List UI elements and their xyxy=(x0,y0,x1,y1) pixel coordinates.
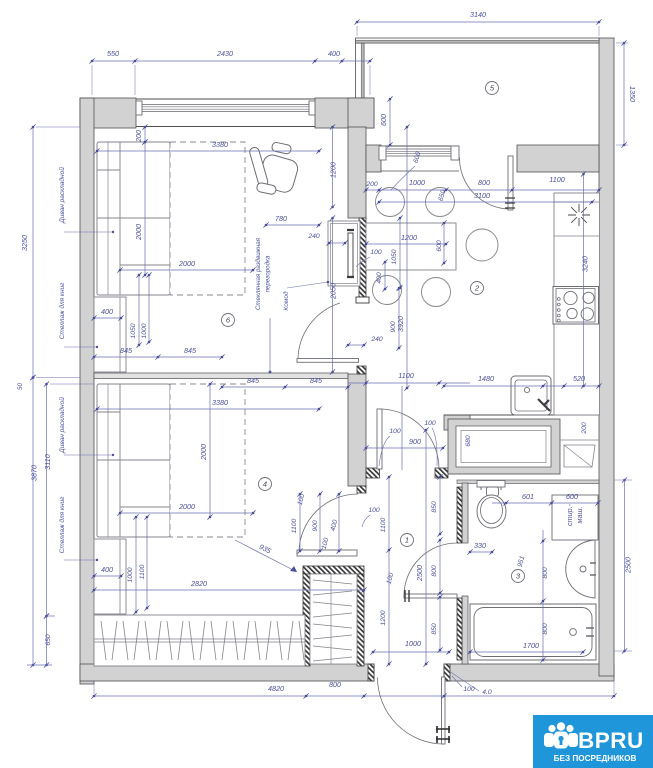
svg-text:800: 800 xyxy=(542,567,549,579)
svg-text:600: 600 xyxy=(566,492,578,501)
svg-text:Комод: Комод xyxy=(282,291,290,311)
svg-text:3250: 3250 xyxy=(20,235,29,251)
svg-text:200: 200 xyxy=(136,130,143,143)
svg-text:3920: 3920 xyxy=(396,316,405,332)
svg-text:1100: 1100 xyxy=(380,517,387,532)
svg-text:650: 650 xyxy=(45,634,52,646)
svg-text:800: 800 xyxy=(431,565,438,577)
svg-text:3110: 3110 xyxy=(43,454,52,469)
svg-text:1000: 1000 xyxy=(127,567,134,582)
svg-text:400: 400 xyxy=(101,307,113,316)
svg-text:3380: 3380 xyxy=(212,398,228,407)
svg-text:1050: 1050 xyxy=(391,249,398,264)
svg-text:2820: 2820 xyxy=(190,579,207,588)
svg-text:240: 240 xyxy=(370,336,383,343)
svg-text:200: 200 xyxy=(581,422,588,435)
svg-text:3100: 3100 xyxy=(474,191,490,200)
svg-text:Стеллаж для книг: Стеллаж для книг xyxy=(58,496,66,554)
svg-text:Диван раскладной: Диван раскладной xyxy=(58,397,66,454)
svg-text:маш.: маш. xyxy=(575,507,584,524)
svg-text:1: 1 xyxy=(405,536,409,545)
svg-text:3140: 3140 xyxy=(470,10,486,19)
svg-text:850: 850 xyxy=(431,501,438,513)
svg-text:3240: 3240 xyxy=(581,256,590,272)
svg-text:1350: 1350 xyxy=(628,86,637,102)
svg-text:1100: 1100 xyxy=(549,175,564,184)
svg-text:Стеклянная раздвижная: Стеклянная раздвижная xyxy=(255,237,262,310)
svg-text:1200: 1200 xyxy=(329,162,338,178)
svg-text:600: 600 xyxy=(436,240,443,252)
svg-text:400: 400 xyxy=(328,49,340,58)
svg-text:Диван раскладной: Диван раскладной xyxy=(58,167,66,224)
svg-text:200: 200 xyxy=(365,181,378,188)
svg-text:2: 2 xyxy=(474,284,480,293)
svg-text:1000: 1000 xyxy=(405,639,421,648)
svg-text:1000: 1000 xyxy=(409,178,425,187)
svg-text:4.0: 4.0 xyxy=(482,689,492,696)
svg-text:2500: 2500 xyxy=(415,565,424,582)
svg-text:800: 800 xyxy=(542,623,549,635)
svg-text:845: 845 xyxy=(310,376,323,385)
svg-text:перегородка: перегородка xyxy=(265,255,272,292)
svg-text:800: 800 xyxy=(478,178,490,187)
svg-text:100: 100 xyxy=(424,420,436,427)
svg-text:601: 601 xyxy=(522,492,534,501)
svg-text:600: 600 xyxy=(379,114,388,126)
svg-text:1700: 1700 xyxy=(523,641,539,650)
svg-text:50: 50 xyxy=(17,383,24,391)
svg-text:2000: 2000 xyxy=(178,502,195,511)
svg-text:БЕЗ ПОСРЕДНИКОВ: БЕЗ ПОСРЕДНИКОВ xyxy=(554,754,637,763)
svg-text:2000: 2000 xyxy=(134,224,143,241)
svg-text:330: 330 xyxy=(474,541,486,550)
svg-text:240: 240 xyxy=(307,233,320,240)
svg-text:2430: 2430 xyxy=(216,49,233,58)
svg-text:845: 845 xyxy=(120,346,133,355)
svg-text:100: 100 xyxy=(370,249,382,256)
svg-text:4820: 4820 xyxy=(268,684,284,693)
svg-text:BPRU: BPRU xyxy=(578,728,644,753)
svg-text:900: 900 xyxy=(390,321,397,333)
svg-text:780: 780 xyxy=(275,214,287,223)
svg-text:900: 900 xyxy=(409,437,421,446)
svg-text:3380: 3380 xyxy=(212,140,228,149)
svg-text:1100: 1100 xyxy=(291,518,298,533)
svg-text:Стеллаж для книг: Стеллаж для книг xyxy=(58,282,66,340)
svg-text:1200: 1200 xyxy=(401,233,417,242)
svg-text:680: 680 xyxy=(465,435,472,447)
svg-text:4: 4 xyxy=(263,480,267,489)
svg-text:2050: 2050 xyxy=(329,283,338,300)
svg-text:2000: 2000 xyxy=(178,259,195,268)
svg-text:100: 100 xyxy=(389,428,401,435)
svg-text:1050: 1050 xyxy=(130,323,137,338)
svg-text:1200: 1200 xyxy=(380,610,387,625)
svg-text:845: 845 xyxy=(184,346,197,355)
svg-text:900: 900 xyxy=(312,520,319,532)
svg-text:1100: 1100 xyxy=(398,371,413,380)
svg-text:2500: 2500 xyxy=(624,557,633,574)
svg-text:100: 100 xyxy=(368,507,380,514)
svg-text:550: 550 xyxy=(107,49,119,58)
svg-text:стир.-: стир.- xyxy=(565,503,574,526)
svg-text:2000: 2000 xyxy=(199,444,208,461)
svg-text:850: 850 xyxy=(431,623,438,635)
svg-text:800: 800 xyxy=(329,680,341,689)
svg-text:1000: 1000 xyxy=(141,323,148,338)
svg-text:100: 100 xyxy=(463,686,475,693)
svg-text:400: 400 xyxy=(376,272,383,284)
svg-text:1480: 1480 xyxy=(478,374,494,383)
svg-text:3870: 3870 xyxy=(30,465,39,481)
svg-text:400: 400 xyxy=(101,565,113,574)
svg-text:1100: 1100 xyxy=(139,564,146,579)
svg-text:845: 845 xyxy=(247,376,260,385)
